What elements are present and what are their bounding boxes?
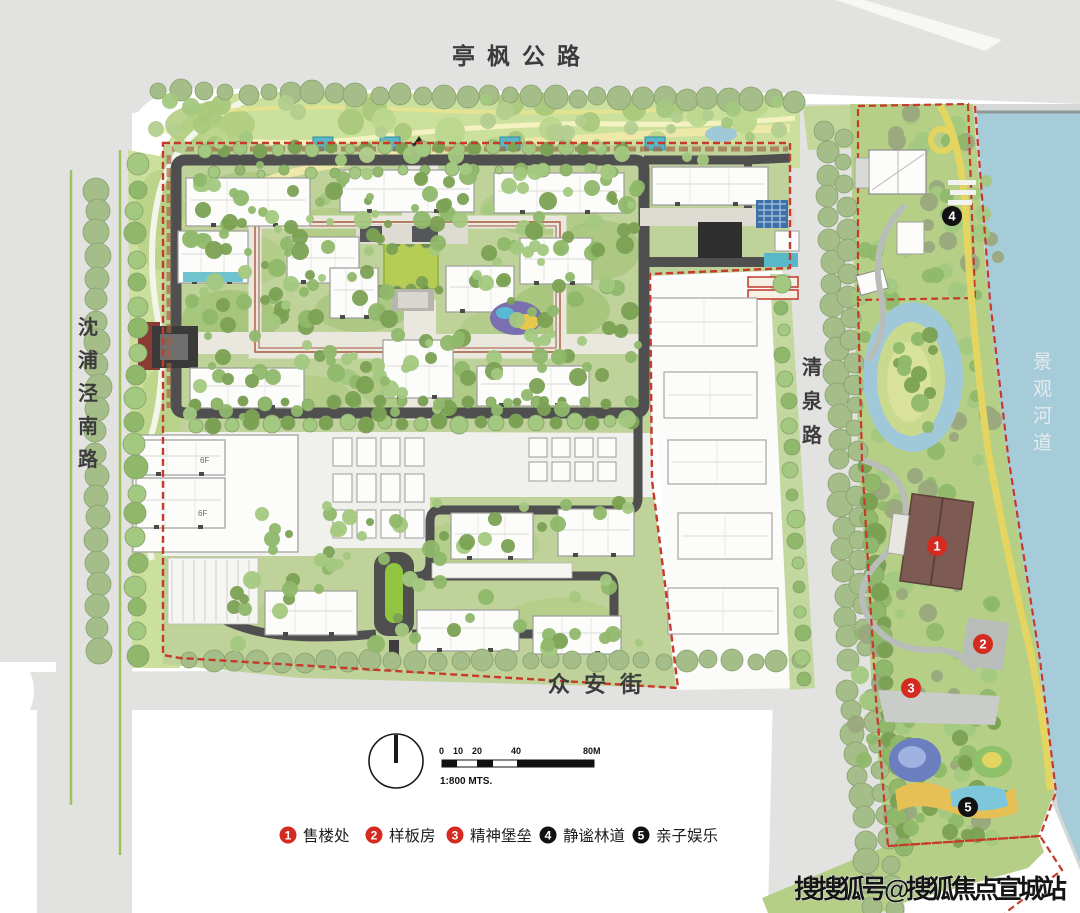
svg-text:路: 路: [802, 423, 823, 447]
svg-text:10: 10: [453, 746, 463, 756]
svg-text:1: 1: [285, 829, 292, 843]
svg-text:3: 3: [452, 829, 459, 843]
svg-text:搜搜狐号@搜狐焦点宣城站: 搜搜狐号@搜狐焦点宣城站: [794, 874, 1067, 904]
svg-text:南: 南: [78, 415, 98, 438]
svg-text:5: 5: [964, 800, 971, 815]
svg-text:道: 道: [1033, 432, 1052, 454]
svg-text:5: 5: [638, 829, 645, 843]
svg-text:沈: 沈: [78, 316, 98, 339]
svg-text:4: 4: [948, 209, 956, 224]
svg-text:2: 2: [371, 829, 378, 843]
svg-text:亲子娱乐: 亲子娱乐: [656, 827, 718, 845]
svg-text:6F: 6F: [198, 509, 207, 518]
svg-text:0: 0: [439, 746, 444, 756]
svg-text:观: 观: [1033, 379, 1052, 400]
svg-text:20: 20: [472, 746, 482, 756]
svg-text:40: 40: [511, 746, 521, 756]
svg-text:亭枫公路: 亭枫公路: [452, 43, 592, 69]
svg-text:80M: 80M: [583, 746, 601, 756]
svg-text:3: 3: [907, 681, 914, 696]
svg-text:河: 河: [1033, 405, 1052, 427]
svg-text:浦: 浦: [78, 348, 98, 372]
svg-text:清: 清: [802, 355, 822, 379]
svg-text:售楼处: 售楼处: [303, 827, 350, 845]
svg-text:2: 2: [979, 637, 986, 652]
svg-text:精神堡垒: 精神堡垒: [470, 827, 532, 845]
svg-text:泉: 泉: [801, 389, 823, 413]
svg-text:6F: 6F: [200, 456, 209, 465]
svg-text:1: 1: [933, 539, 940, 554]
svg-text:样板房: 样板房: [389, 827, 436, 845]
svg-text:景: 景: [1033, 352, 1052, 373]
svg-text:路: 路: [78, 447, 99, 471]
svg-text:1:800 MTS.: 1:800 MTS.: [440, 776, 492, 787]
svg-text:众安街: 众安街: [548, 672, 656, 697]
svg-text:4: 4: [545, 829, 552, 843]
svg-text:静谧林道: 静谧林道: [563, 827, 625, 845]
svg-text:泾: 泾: [78, 382, 98, 405]
